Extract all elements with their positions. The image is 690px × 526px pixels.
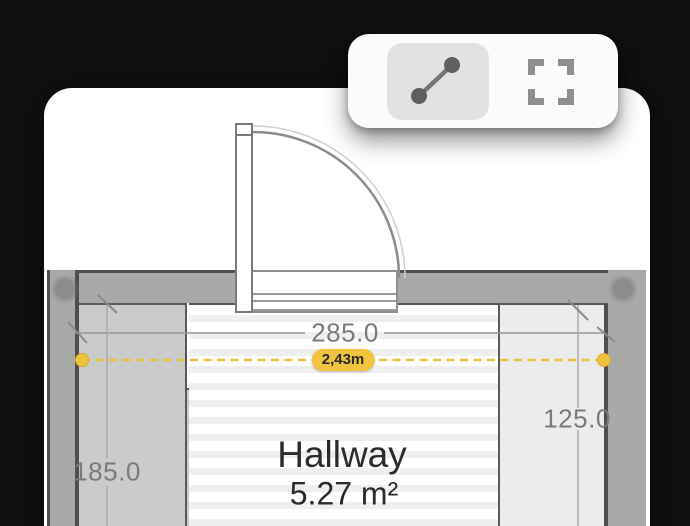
- measure-line-icon: [396, 50, 480, 114]
- floor-plan-canvas[interactable]: 285.0 185.0 125.0 Hallway 5.27 m² 2,43m: [44, 88, 650, 526]
- measure-tool-button[interactable]: [387, 43, 489, 120]
- marquee-icon: [528, 59, 574, 105]
- select-area-tool-button[interactable]: [500, 43, 602, 120]
- canvas-background: 285.0 185.0 125.0 Hallway 5.27 m² 2,43m: [0, 0, 690, 526]
- measure-toolbar: [348, 34, 618, 128]
- measurement-endpoint-right[interactable]: [598, 354, 611, 367]
- measurement-endpoint-left[interactable]: [76, 354, 89, 367]
- measurement-line-layer: [44, 88, 650, 526]
- measurement-value-badge[interactable]: 2,43m: [312, 349, 375, 371]
